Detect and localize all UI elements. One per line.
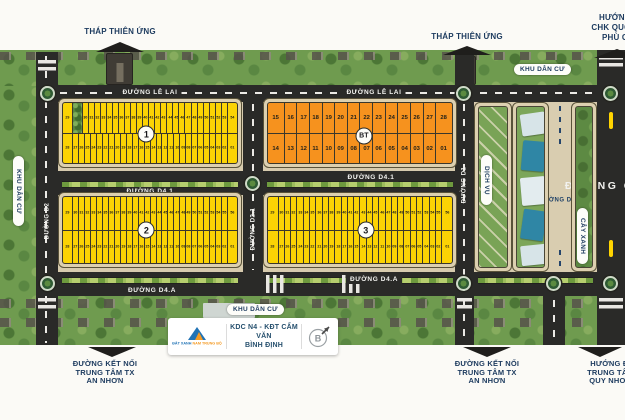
median-d41-east — [267, 181, 453, 188]
lot-BT-23: 23 — [373, 103, 386, 133]
arrow-down-icon — [88, 347, 136, 357]
svg-text:B: B — [315, 333, 322, 343]
connector-left: ĐƯỜNG KẾT NỐI TRUNG TÂM TX AN NHƠN — [55, 360, 155, 386]
arrow-up-icon — [96, 42, 144, 52]
ql1-yellow-mark — [609, 240, 613, 257]
label-cay-xanh: CÂY XANH — [577, 208, 588, 264]
roundabout — [245, 176, 260, 191]
connector-right: ĐƯỜNG KẾT NỐI TRUNG TÂM TX AN NHƠN — [437, 360, 537, 386]
road-label-le-lai-1: ĐƯỜNG LÊ LAI — [119, 88, 182, 97]
lot-BT-15: 15 — [268, 103, 285, 133]
label-khu-dan-cu-left: KHU DÂN CƯ — [13, 156, 24, 226]
roundabout — [546, 276, 561, 291]
label-dich-vu: DỊCH VỤ — [481, 155, 492, 205]
tower-label-right: THÁP THIÊN ỨNG — [407, 33, 527, 42]
median-d4a-east — [478, 277, 593, 284]
ql1-yellow-mark — [609, 112, 613, 129]
masterplan-map: ĐƯỜNG LÊ LAI ĐƯỜNG LÊ LAI ĐƯỜNG D4.1 ĐƯỜ… — [0, 0, 625, 420]
lot-2-29: 29 — [63, 197, 73, 230]
direction-airport: HƯỚNG ĐI CHK QUỐC TẾ PHÙ CÁT — [573, 13, 625, 43]
lot-1-54: 54 — [228, 103, 237, 133]
road-label-d11: ĐƯỜNG D1.1 — [549, 150, 571, 250]
lot-BT-03: 03 — [411, 134, 424, 164]
road-label-d41-2: ĐƯỜNG D4.1 — [344, 173, 399, 182]
lot-BT-28: 28 — [436, 103, 452, 133]
developer-logo: ĐẤT XANH NAM TRUNG BỘ — [168, 327, 226, 347]
project-card: ĐẤT XANH NAM TRUNG BỘ KDC N4 - KĐT CẨM V… — [168, 318, 338, 355]
lot-BT-27: 27 — [424, 103, 437, 133]
label-khu-dan-cu-top-right: KHU DÂN CƯ — [514, 64, 571, 75]
crosswalk — [266, 275, 286, 293]
block-badge-3: 3 — [357, 222, 374, 239]
crosswalk — [457, 298, 472, 311]
road-label-d4a-2: ĐƯỜNG D4.A — [346, 275, 402, 284]
roundabout — [603, 86, 618, 101]
lot-BT-26: 26 — [411, 103, 424, 133]
lot-BT-02: 02 — [424, 134, 437, 164]
service-area — [474, 102, 512, 272]
lane-dash-navy — [559, 250, 561, 270]
lot-1-29: 29 — [63, 103, 73, 133]
top-houses — [0, 52, 625, 60]
block-badge-bt: BT — [355, 128, 372, 145]
datxanh-logo-icon — [188, 327, 206, 340]
lot-BT-17: 17 — [297, 103, 310, 133]
lot-BT-01: 01 — [436, 134, 452, 164]
gate-tower-left — [106, 53, 133, 85]
lot-BT-19: 19 — [323, 103, 336, 133]
crosswalk — [38, 298, 56, 311]
land-block-3: 2930313233343536373839404142434445464748… — [263, 192, 457, 268]
bottom-houses-1 — [0, 299, 625, 308]
lane-dash — [553, 300, 555, 343]
land-block-1: 2930313233343536373839404142434445464748… — [58, 98, 242, 168]
block-number: BT — [359, 133, 368, 140]
median-d4a-west — [62, 277, 238, 284]
road-label-le-lai-2: ĐƯỜNG LÊ LAI — [343, 88, 406, 97]
lot-BT-14: 14 — [268, 134, 285, 164]
compass-icon: B — [302, 324, 338, 350]
lot-BT-13: 13 — [285, 134, 298, 164]
lot-3-01: 01 — [442, 231, 452, 264]
developer-name: ĐẤT XANH NAM TRUNG BỘ — [172, 342, 222, 346]
block-badge-2: 2 — [138, 222, 155, 239]
lot-BT-09: 09 — [335, 134, 348, 164]
block-number: 2 — [144, 225, 149, 235]
block-number: 3 — [363, 225, 368, 235]
lot-1-28: 28 — [63, 134, 73, 164]
road-label-d4a-1: ĐƯỜNG D4.A — [124, 286, 180, 295]
roundabout — [456, 86, 471, 101]
roundabout — [40, 276, 55, 291]
label-khu-dan-cu-bottom: KHU DÂN CƯ — [227, 304, 284, 315]
lot-2-28: 28 — [63, 231, 73, 264]
direction-quy-nhon: HƯỚNG ĐI TRUNG TÂM QUY NHƠN — [563, 360, 625, 386]
road-label-d1: ĐƯỜNG D1 — [455, 158, 474, 212]
lot-BT-10: 10 — [323, 134, 336, 164]
lot-BT-04: 04 — [398, 134, 411, 164]
road-label-d2: ĐƯỜNG D2 — [36, 190, 58, 252]
crosswalk — [599, 56, 623, 70]
road-label-ql1: ĐƯỜNG QL.1 — [597, 136, 625, 236]
lot-BT-05: 05 — [386, 134, 399, 164]
lot-2-01: 01 — [228, 231, 237, 264]
crosswalk — [38, 60, 56, 73]
roundabout — [40, 86, 55, 101]
lot-3-29: 29 — [268, 197, 279, 230]
lot-2-56: 56 — [228, 197, 237, 230]
tree-lot — [73, 103, 83, 133]
lot-BT-18: 18 — [310, 103, 323, 133]
lot-BT-24: 24 — [386, 103, 399, 133]
road-label-d21: ĐƯỜNG D2.1 — [243, 198, 263, 260]
crosswalk — [599, 298, 623, 312]
roundabout — [603, 276, 618, 291]
tower-label-left: THÁP THIÊN ỨNG — [60, 28, 180, 37]
lot-BT-11: 11 — [310, 134, 323, 164]
apartment-area — [512, 102, 549, 272]
arrow-down-icon — [578, 347, 622, 357]
land-block-bt: 1516171819202122232425262728141312111009… — [263, 98, 457, 168]
block-badge-1: 1 — [138, 126, 155, 143]
lot-3-28: 28 — [268, 231, 279, 264]
lot-BT-16: 16 — [285, 103, 298, 133]
roundabout — [456, 276, 471, 291]
lane-dash-navy — [559, 106, 561, 150]
lot-3-56: 56 — [442, 197, 452, 230]
arrow-down-icon — [463, 347, 511, 357]
block-number: 1 — [144, 129, 149, 139]
land-block-2: 2930313233343536373839404142434445464748… — [58, 192, 242, 268]
lot-BT-25: 25 — [398, 103, 411, 133]
lot-BT-20: 20 — [335, 103, 348, 133]
lot-BT-06: 06 — [373, 134, 386, 164]
lot-BT-12: 12 — [297, 134, 310, 164]
lot-1-01: 01 — [228, 134, 237, 164]
project-title: KDC N4 - KĐT CẨM VĂN BÌNH ĐỊNH — [227, 323, 301, 350]
